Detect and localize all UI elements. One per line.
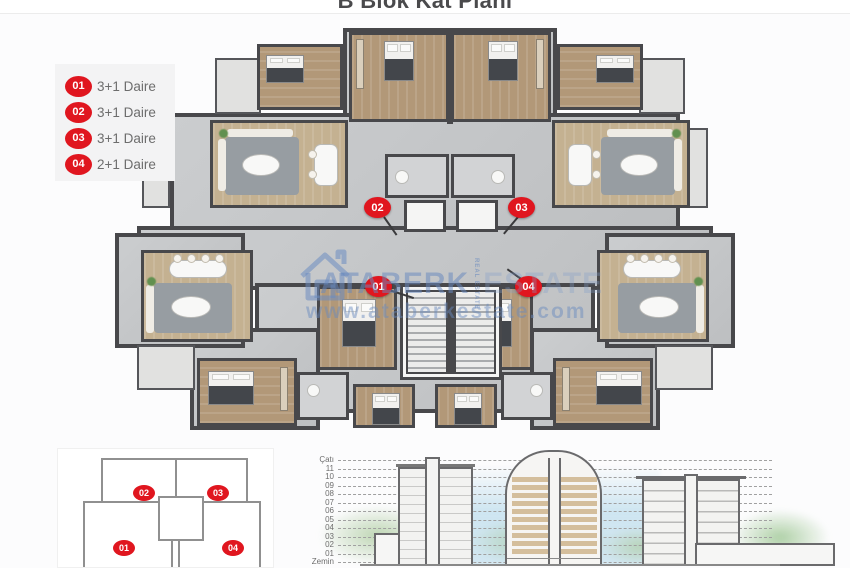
bedroom-bottom-center-left bbox=[353, 384, 415, 428]
bed bbox=[488, 41, 518, 81]
bedroom-top-left bbox=[257, 44, 343, 110]
dining-table bbox=[315, 145, 337, 185]
bedroom-bottom-center-right bbox=[435, 384, 497, 428]
bedroom-bottom-left bbox=[197, 358, 297, 426]
dining-table bbox=[170, 261, 226, 277]
plant bbox=[672, 129, 681, 138]
bathroom-bottom-left bbox=[297, 372, 349, 420]
sofa bbox=[696, 285, 704, 333]
legend-item-02: 02 3+1 Daire bbox=[65, 99, 175, 125]
stair-flight-right bbox=[454, 290, 496, 374]
plan-marker-02: 02 bbox=[364, 197, 391, 218]
header-bar: B Blok Kat Planı bbox=[0, 0, 850, 14]
unit-badge-03: 03 bbox=[65, 128, 92, 149]
chair bbox=[669, 255, 676, 262]
bed bbox=[384, 41, 414, 81]
legend-item-01: 01 3+1 Daire bbox=[65, 73, 175, 99]
keyplan-marker-04: 04 bbox=[222, 540, 244, 556]
key-plan: 02 03 01 04 bbox=[57, 448, 274, 568]
sink bbox=[396, 171, 408, 183]
legend-label: 3+1 Daire bbox=[97, 131, 156, 146]
chair bbox=[641, 255, 648, 262]
bedroom-top-right bbox=[557, 44, 643, 110]
chair bbox=[627, 255, 634, 262]
unit-badge-01: 01 bbox=[65, 76, 92, 97]
chair bbox=[593, 171, 600, 178]
sofa bbox=[607, 129, 673, 137]
tower-terrace-steps bbox=[374, 533, 400, 566]
coffee-table bbox=[172, 297, 210, 317]
bed bbox=[596, 55, 634, 83]
plan-marker-04: 04 bbox=[515, 276, 542, 297]
chair bbox=[309, 151, 316, 158]
chair bbox=[593, 151, 600, 158]
chair bbox=[655, 255, 662, 262]
page-title: B Blok Kat Planı bbox=[0, 0, 850, 14]
ground-line bbox=[360, 564, 780, 566]
closet bbox=[562, 367, 570, 411]
bed bbox=[266, 55, 304, 83]
bathroom-center-left bbox=[385, 154, 449, 198]
bed bbox=[342, 299, 376, 347]
closet bbox=[356, 39, 364, 89]
bedroom-bottom-right bbox=[553, 358, 653, 426]
unit-badge-02: 02 bbox=[65, 102, 92, 123]
balcony-bottom-left bbox=[137, 345, 195, 390]
elevator-shaft-right bbox=[456, 200, 498, 232]
coffee-table bbox=[621, 155, 657, 175]
sofa bbox=[674, 139, 682, 191]
wall bbox=[448, 290, 454, 374]
sofa bbox=[218, 139, 226, 191]
bed bbox=[372, 393, 400, 425]
plant bbox=[219, 129, 228, 138]
coffee-table bbox=[243, 155, 279, 175]
building-middle-arched bbox=[505, 450, 602, 566]
chair bbox=[174, 255, 181, 262]
bathroom-center-right bbox=[451, 154, 515, 198]
bed bbox=[596, 371, 642, 405]
terrace-top-left bbox=[215, 58, 261, 114]
plant bbox=[694, 277, 703, 286]
building-elevation: Çatı 11 10 09 08 07 06 05 04 03 02 01 Ze… bbox=[300, 445, 850, 566]
elevator-shaft-left bbox=[404, 200, 446, 232]
sofa bbox=[227, 129, 293, 137]
floor-label-06: 06 bbox=[300, 507, 334, 515]
keyplan-core bbox=[158, 496, 204, 541]
bed bbox=[454, 393, 482, 425]
living-room-far-left bbox=[141, 250, 253, 342]
wall bbox=[447, 28, 453, 124]
unit-badge-04: 04 bbox=[65, 154, 92, 175]
closet bbox=[280, 367, 288, 411]
bedroom-top-center-left bbox=[349, 32, 449, 122]
living-room-upper-left bbox=[210, 120, 348, 208]
floor-label-zemin: Zemin bbox=[300, 558, 334, 566]
unit-legend: 01 3+1 Daire 02 3+1 Daire 03 3+1 Daire 0… bbox=[55, 64, 175, 181]
stair-flight-left bbox=[406, 290, 448, 374]
floor-label-10: 10 bbox=[300, 473, 334, 481]
living-room-upper-right bbox=[552, 120, 690, 208]
closet bbox=[536, 39, 544, 89]
keyplan-marker-03: 03 bbox=[207, 485, 229, 501]
dining-table bbox=[569, 145, 591, 185]
plan-marker-01: 01 bbox=[365, 276, 392, 297]
bedroom-mid-left bbox=[317, 286, 397, 370]
plan-marker-03: 03 bbox=[508, 197, 535, 218]
legend-item-04: 04 2+1 Daire bbox=[65, 151, 175, 177]
floor-label-02: 02 bbox=[300, 541, 334, 549]
sofa bbox=[146, 285, 154, 333]
balcony-bottom-right bbox=[655, 345, 713, 390]
sink bbox=[531, 385, 542, 396]
dining-table bbox=[624, 261, 680, 277]
sink bbox=[492, 171, 504, 183]
building-left-tower bbox=[398, 461, 473, 566]
floor-label-04: 04 bbox=[300, 524, 334, 532]
floor-plan: 02 03 01 04 ATABERK REAL ESTATE ESTATE w… bbox=[115, 28, 735, 432]
sink bbox=[308, 385, 319, 396]
keyplan-marker-01: 01 bbox=[113, 540, 135, 556]
coffee-table bbox=[640, 297, 678, 317]
keyplan-marker-02: 02 bbox=[133, 485, 155, 501]
living-room-far-right bbox=[597, 250, 709, 342]
plant bbox=[147, 277, 156, 286]
legend-label: 2+1 Daire bbox=[97, 157, 156, 172]
bedroom-top-center-right bbox=[451, 32, 551, 122]
chair bbox=[309, 171, 316, 178]
floor-label-cati: Çatı bbox=[300, 456, 334, 464]
bathroom-bottom-right bbox=[501, 372, 553, 420]
legend-label: 3+1 Daire bbox=[97, 79, 156, 94]
chair bbox=[188, 255, 195, 262]
legend-label: 3+1 Daire bbox=[97, 105, 156, 120]
right-podium bbox=[695, 543, 835, 566]
bed bbox=[208, 371, 254, 405]
chair bbox=[202, 255, 209, 262]
legend-item-03: 03 3+1 Daire bbox=[65, 125, 175, 151]
floor-label-08: 08 bbox=[300, 490, 334, 498]
chair bbox=[216, 255, 223, 262]
terrace-top-right bbox=[639, 58, 685, 114]
